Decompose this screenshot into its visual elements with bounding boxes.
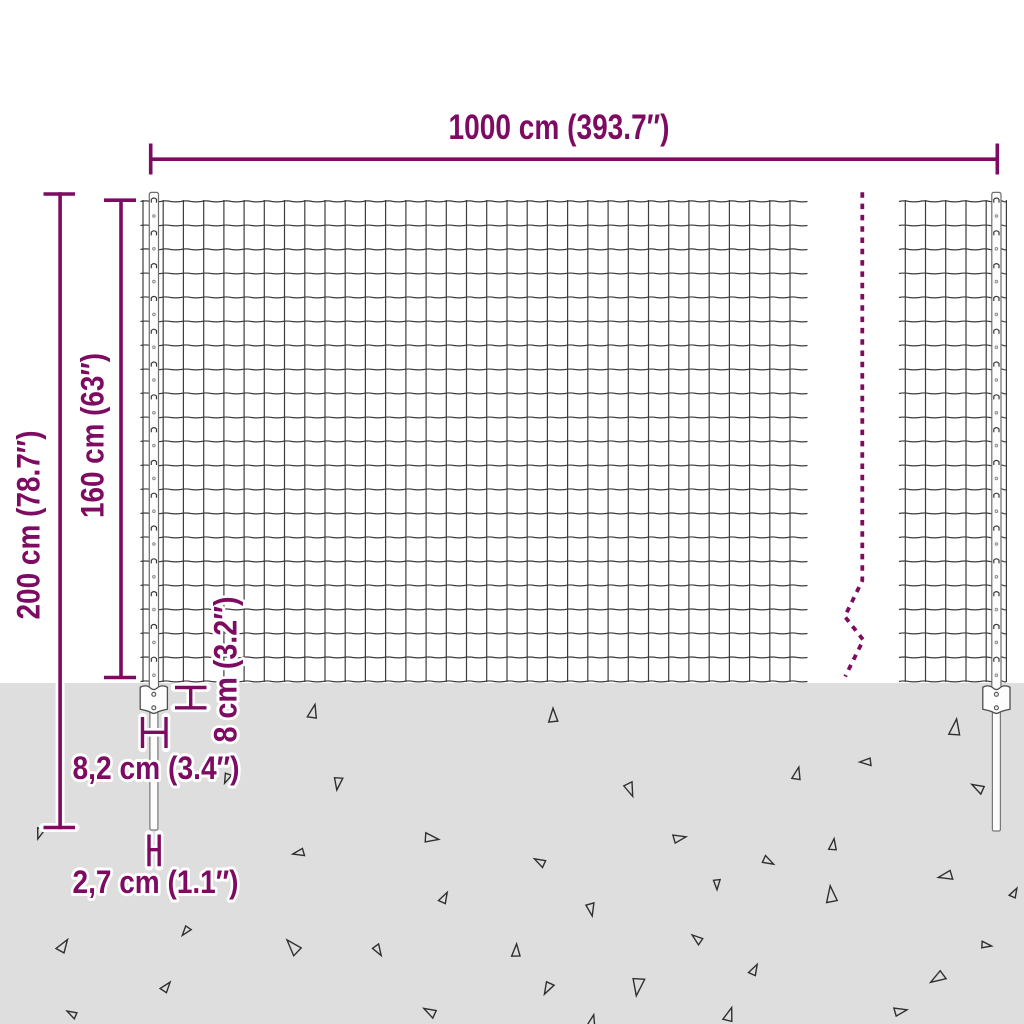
svg-text:1000 cm (393.7″): 1000 cm (393.7″) [449, 108, 670, 147]
svg-text:8 cm (3.2″): 8 cm (3.2″) [208, 597, 244, 743]
svg-text:2,7 cm (1.1″): 2,7 cm (1.1″) [73, 864, 239, 900]
svg-text:200 cm (78.7″): 200 cm (78.7″) [11, 431, 47, 620]
svg-text:160 cm (63″): 160 cm (63″) [75, 353, 111, 518]
svg-text:8,2 cm (3.4″): 8,2 cm (3.4″) [73, 750, 240, 786]
